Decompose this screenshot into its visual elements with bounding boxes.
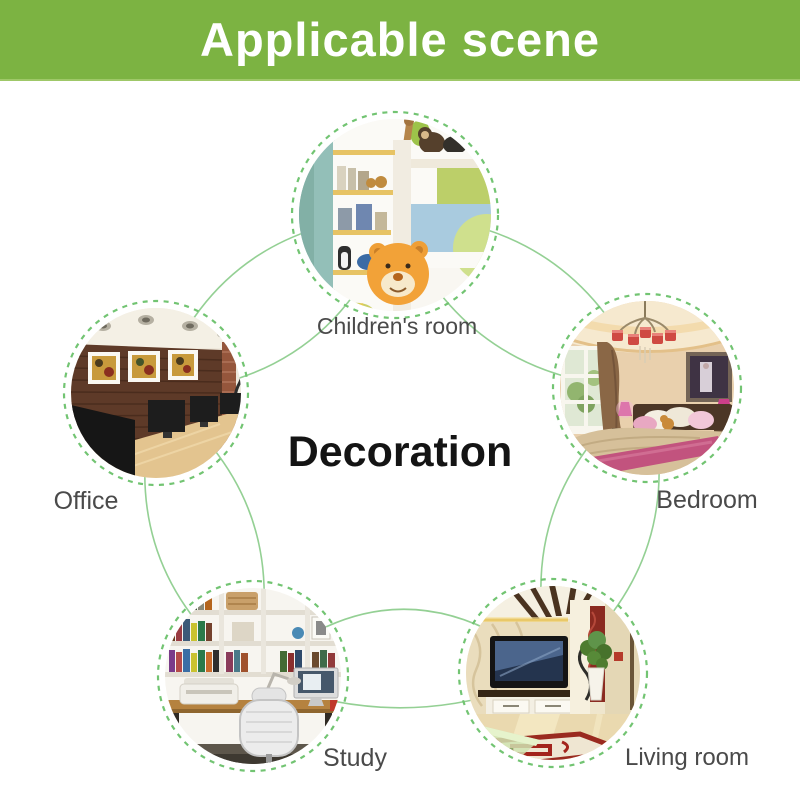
office-label: Office [16,488,156,516]
children-room-photo [299,116,521,410]
office-photo [71,308,266,484]
living-room-label: Living room [607,745,767,771]
header-banner: Applicable scene [0,0,800,81]
page-title: Applicable scene [200,12,600,67]
center-label: Decoration [250,428,550,477]
study-label: Study [285,745,425,773]
bedroom-label: Bedroom [637,487,777,515]
study-photo [165,588,341,764]
children-room-label: Children's room [277,314,517,339]
applicable-scene-diagram: Children's room Office Bedroom Study Liv… [0,0,800,800]
diagram-canvas [0,0,800,800]
living-room-photo [466,585,640,764]
